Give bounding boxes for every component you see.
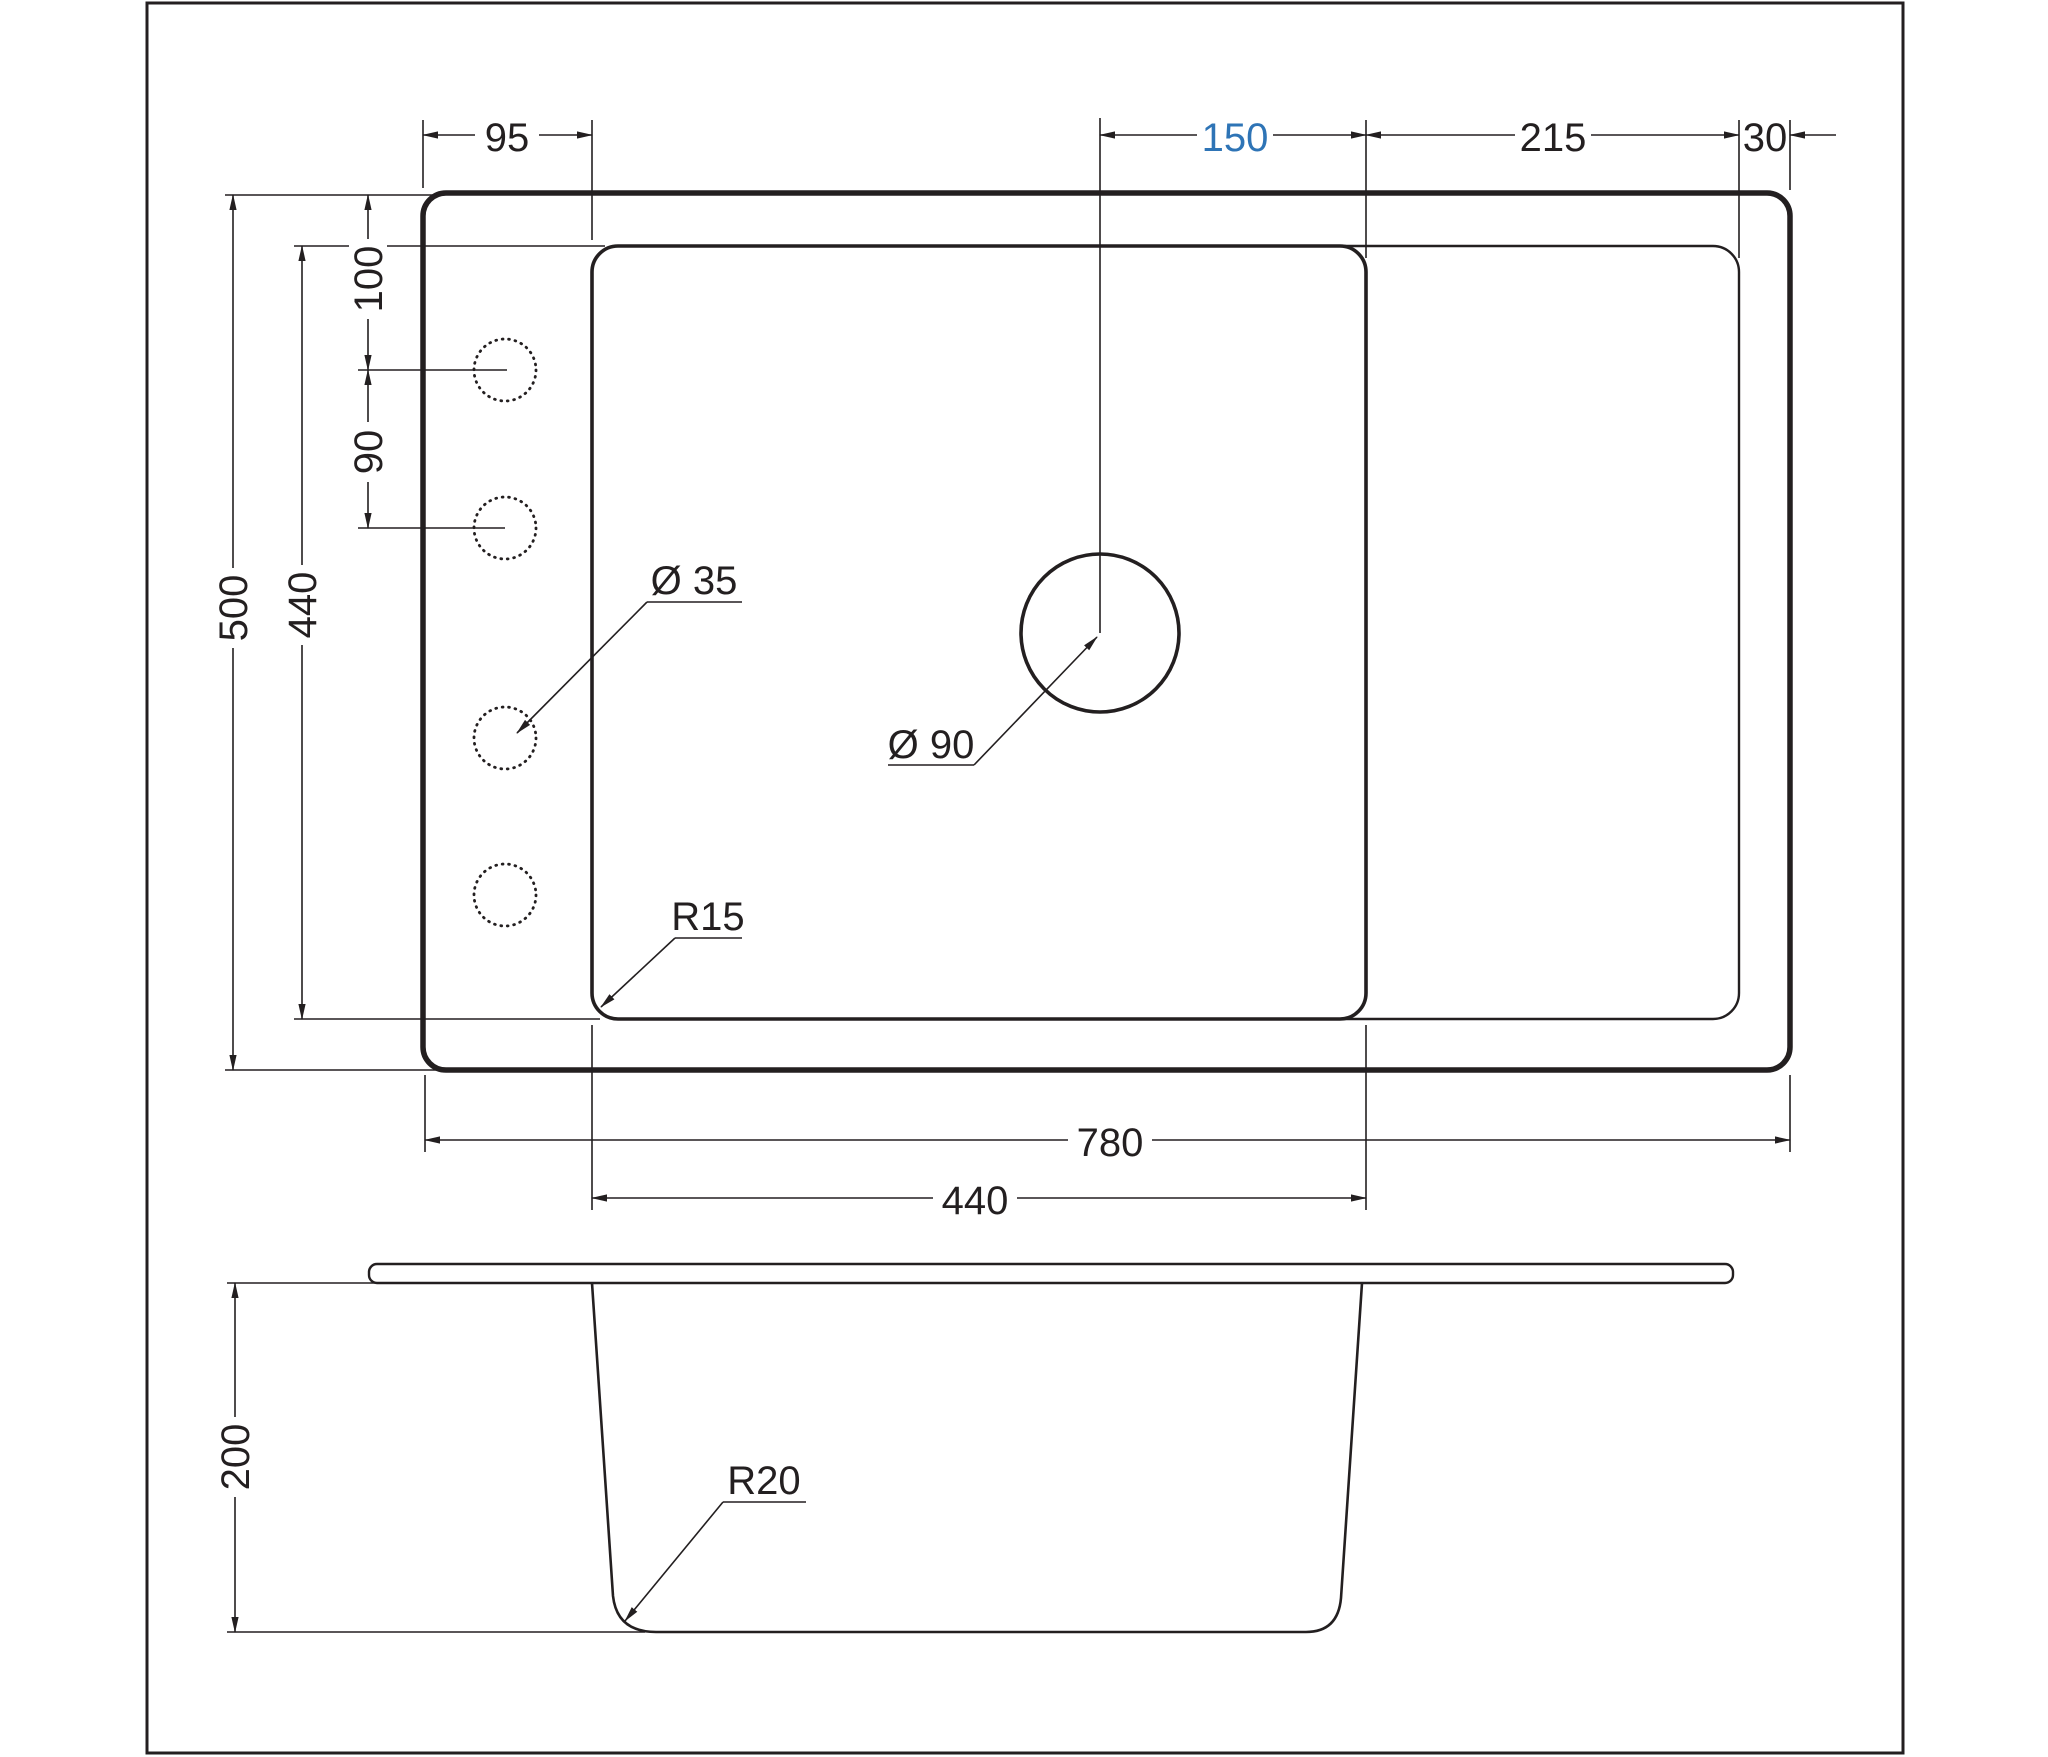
- leader-arrow-dia90: [974, 637, 1097, 765]
- sink-technical-drawing: 95 150 215 30 500 440 100 90 780: [0, 0, 2048, 1757]
- page-frame: [147, 3, 1903, 1753]
- sink-outer-outline: [423, 193, 1790, 1070]
- dim-30: 30: [1743, 116, 1788, 160]
- dim-440-bottom: 440: [942, 1179, 1009, 1223]
- faucet-hole-3: [474, 707, 536, 769]
- top-view: [358, 118, 1790, 1070]
- dimensions-top: 95 150 215 30: [423, 116, 1836, 258]
- dim-440-left: 440: [281, 572, 325, 639]
- dimensions-left: 500 440 100 90: [212, 195, 605, 1070]
- dim-215: 215: [1520, 116, 1587, 160]
- sink-recess-outline: [592, 246, 1739, 1019]
- dim-95: 95: [485, 116, 530, 160]
- dim-150: 150: [1202, 116, 1269, 160]
- label-dia90: Ø 90: [888, 723, 975, 767]
- section-rim-slab: [369, 1264, 1733, 1283]
- section-bowl-profile: [592, 1283, 1362, 1632]
- section-view: 200: [214, 1264, 1733, 1632]
- dim-100: 100: [347, 246, 391, 313]
- label-r20: R20: [727, 1459, 800, 1503]
- leader-arrow-dia35: [517, 602, 647, 733]
- label-dia35: Ø 35: [651, 559, 738, 603]
- leader-arrow-r15: [601, 938, 675, 1007]
- drawing-page: 95 150 215 30 500 440 100 90 780: [0, 0, 2048, 1757]
- dimensions-bottom: 780 440: [425, 1025, 1790, 1223]
- dim-500: 500: [212, 575, 256, 642]
- dim-90: 90: [347, 430, 391, 475]
- dim-200: 200: [214, 1424, 258, 1491]
- leader-arrow-r20: [625, 1502, 723, 1621]
- label-r15: R15: [671, 895, 744, 939]
- faucet-hole-4: [474, 864, 536, 926]
- dim-780: 780: [1077, 1121, 1144, 1165]
